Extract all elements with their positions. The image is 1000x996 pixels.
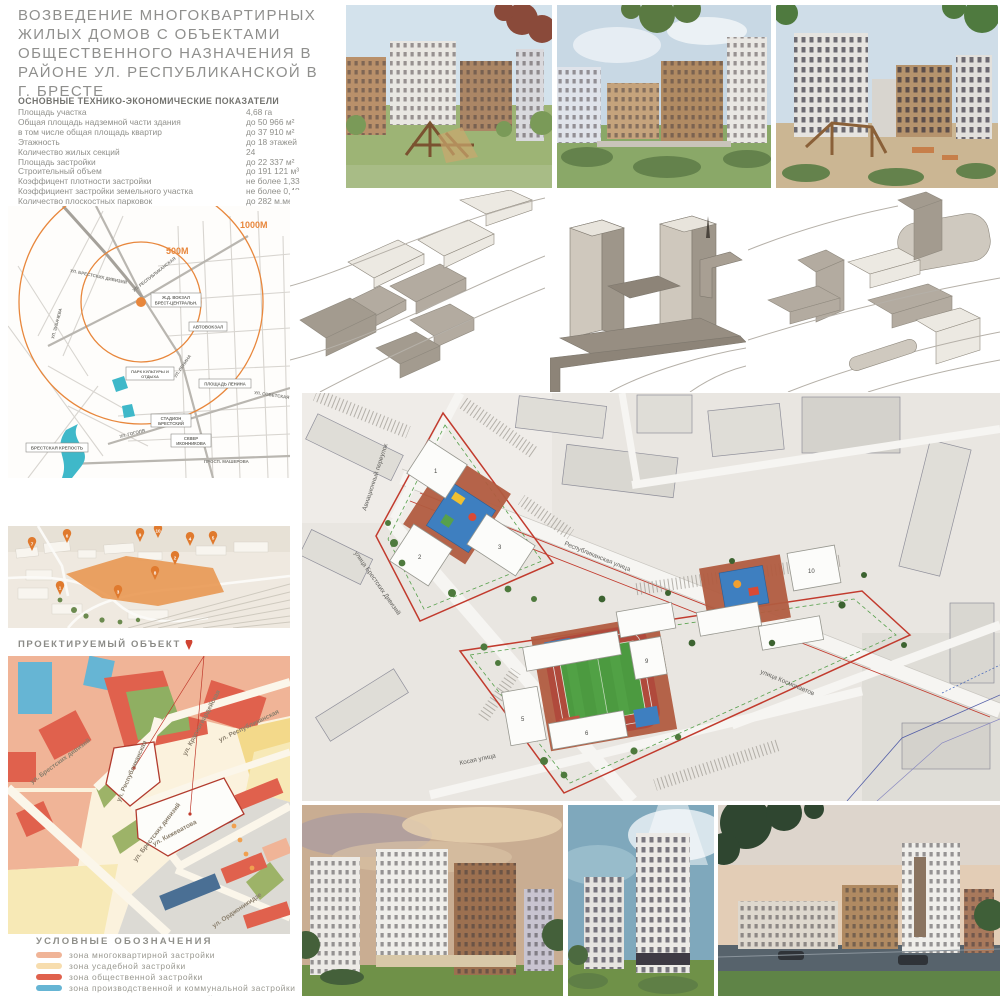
indicators-heading: ОСНОВНЫЕ ТЕХНИКО-ЭКОНОМИЧЕСКИЕ ПОКАЗАТЕЛ… <box>18 96 340 106</box>
svg-text:7: 7 <box>31 542 34 547</box>
title-line: ОБЩЕСТВЕННОГО НАЗНАЧЕНИЯ В <box>18 44 350 63</box>
legend-item: зона общественной застройки <box>36 972 336 983</box>
page-title: ВОЗВЕДЕНИЕ МНОГОКВАРТИРНЫХ ЖИЛЫХ ДОМОВ С… <box>18 6 350 101</box>
zoning-map: ул. Брестских дивизий ул. Красногвардейс… <box>8 656 290 934</box>
master-plan: 1 2 3 5 6 9 10 Авиационный переулок улиц… <box>302 393 1000 801</box>
svg-text:ОТДЫХА: ОТДЫХА <box>141 374 159 379</box>
svg-text:ИКОННИКОВА: ИКОННИКОВА <box>176 441 206 446</box>
poi-fortress: БРЕСТСКАЯ КРЕПОСТЬ <box>26 443 88 452</box>
svg-text:8: 8 <box>154 571 157 576</box>
svg-text:БРЕСТСКИЙ: БРЕСТСКИЙ <box>158 421 184 426</box>
render-two-towers <box>568 805 714 996</box>
site-pin-icon <box>185 640 193 650</box>
svg-text:4: 4 <box>189 537 192 542</box>
render-street-view <box>718 805 1000 996</box>
svg-text:2: 2 <box>174 556 177 561</box>
svg-text:1: 1 <box>59 586 62 591</box>
aerial-view: 1 2 3 4 5 6 7 8 9 10 <box>8 526 290 628</box>
legend: УСЛОВНЫЕ ОБОЗНАЧЕНИЯ зона многоквартирно… <box>36 936 336 996</box>
radius-label-500: 500М <box>166 246 189 256</box>
massing-view-towers <box>550 190 746 392</box>
massing-view-wide <box>290 190 545 392</box>
poi-park: ПАРК КУЛЬТУРЫ И ОТДЫХА <box>126 367 174 380</box>
svg-text:9: 9 <box>139 533 142 538</box>
legend-color-chip <box>36 963 62 969</box>
poi-station: Ж.Д. ВОКЗАЛ БРЕСТ-ЦЕНТРАЛЬН. <box>151 293 201 307</box>
poi-lenin-square: ПЛОЩАДЬ ЛЕНИНА <box>199 379 251 388</box>
massing-view-cluster <box>748 190 1000 392</box>
poi-skver: СКВЕР ИКОННИКОВА <box>171 434 211 447</box>
title-line: РАЙОНЕ УЛ. РЕСПУБЛИКАНСКОЙ В <box>18 63 350 82</box>
svg-text:3: 3 <box>117 590 120 595</box>
legend-item: зона усадебной застройки <box>36 961 336 972</box>
legend-color-chip <box>36 974 62 980</box>
legend-heading: УСЛОВНЫЕ ОБОЗНАЧЕНИЯ <box>36 936 336 947</box>
svg-text:6: 6 <box>66 534 69 539</box>
svg-text:ПЛОЩАДЬ ЛЕНИНА: ПЛОЩАДЬ ЛЕНИНА <box>204 382 246 387</box>
render-courtyard-pergola <box>776 5 998 188</box>
svg-text:БРЕСТ-ЦЕНТРАЛЬН.: БРЕСТ-ЦЕНТРАЛЬН. <box>155 301 198 306</box>
render-courtyard-playground <box>346 5 552 188</box>
poi-stadium: СТАДИОН БРЕСТСКИЙ <box>151 414 191 427</box>
render-sunset-towers <box>302 805 563 996</box>
location-map: 500М 1000М УЛ. ЗУБАЧЕВА УЛ. БРЕСТСКИХ ДИ… <box>8 206 290 478</box>
radius-label-1000: 1000М <box>240 220 268 230</box>
svg-text:10: 10 <box>155 529 161 534</box>
svg-text:Ж.Д. ВОКЗАЛ: Ж.Д. ВОКЗАЛ <box>161 295 190 300</box>
street-label-masherova: ПРОСП. МАШЕРОВА <box>204 459 250 464</box>
svg-text:5: 5 <box>212 536 215 541</box>
legend-color-chip <box>36 952 62 958</box>
presentation-board: ВОЗВЕДЕНИЕ МНОГОКВАРТИРНЫХ ЖИЛЫХ ДОМОВ С… <box>0 0 1000 996</box>
svg-text:10: 10 <box>808 569 815 575</box>
title-line: ЖИЛЫХ ДОМОВ С ОБЪЕКТАМИ <box>18 25 350 44</box>
site-dot <box>136 297 146 307</box>
svg-text:АВТОВОКЗАЛ: АВТОВОКЗАЛ <box>193 325 224 330</box>
svg-text:БРЕСТСКАЯ КРЕПОСТЬ: БРЕСТСКАЯ КРЕПОСТЬ <box>31 446 83 451</box>
legend-item: зона многоквартирной застройки <box>36 950 336 961</box>
poi-bus-station: АВТОВОКЗАЛ <box>189 322 227 331</box>
aerial-caption: ПРОЕКТИРУЕМЫЙ ОБЪЕКТ <box>18 639 193 650</box>
title-line: ВОЗВЕДЕНИЕ МНОГОКВАРТИРНЫХ <box>18 6 350 25</box>
tower-1 <box>570 220 624 338</box>
render-courtyard-lawn <box>557 5 771 188</box>
legend-item: зона производственной и коммунальной зас… <box>36 982 336 993</box>
legend-color-chip <box>36 985 62 991</box>
